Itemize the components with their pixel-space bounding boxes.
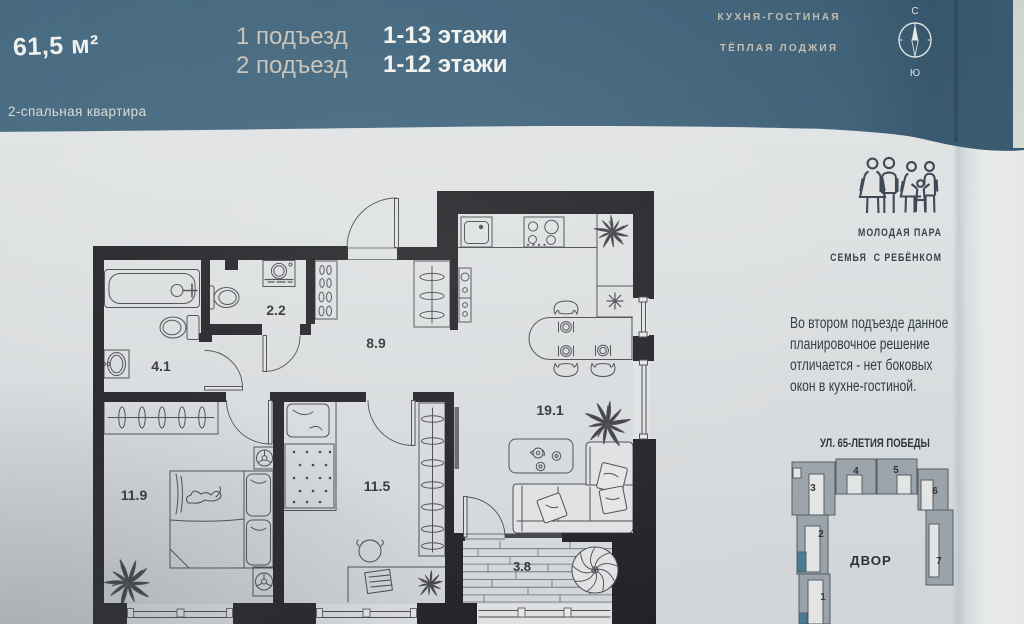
- svg-text:11.5: 11.5: [364, 478, 391, 494]
- svg-text:19.1: 19.1: [536, 402, 563, 418]
- svg-text:8.9: 8.9: [366, 335, 386, 351]
- svg-text:7: 7: [936, 556, 942, 567]
- svg-text:4.1: 4.1: [151, 358, 171, 374]
- svg-text:3.8: 3.8: [513, 559, 531, 574]
- svg-text:2: 2: [818, 529, 824, 540]
- svg-text:1: 1: [820, 592, 826, 603]
- svg-text:11.9: 11.9: [121, 487, 148, 503]
- svg-text:5: 5: [893, 465, 899, 476]
- svg-text:6: 6: [932, 486, 938, 497]
- svg-text:4: 4: [853, 466, 859, 477]
- svg-text:3: 3: [810, 483, 816, 494]
- svg-text:ДВОР: ДВОР: [850, 553, 892, 568]
- svg-text:2.2: 2.2: [266, 302, 286, 318]
